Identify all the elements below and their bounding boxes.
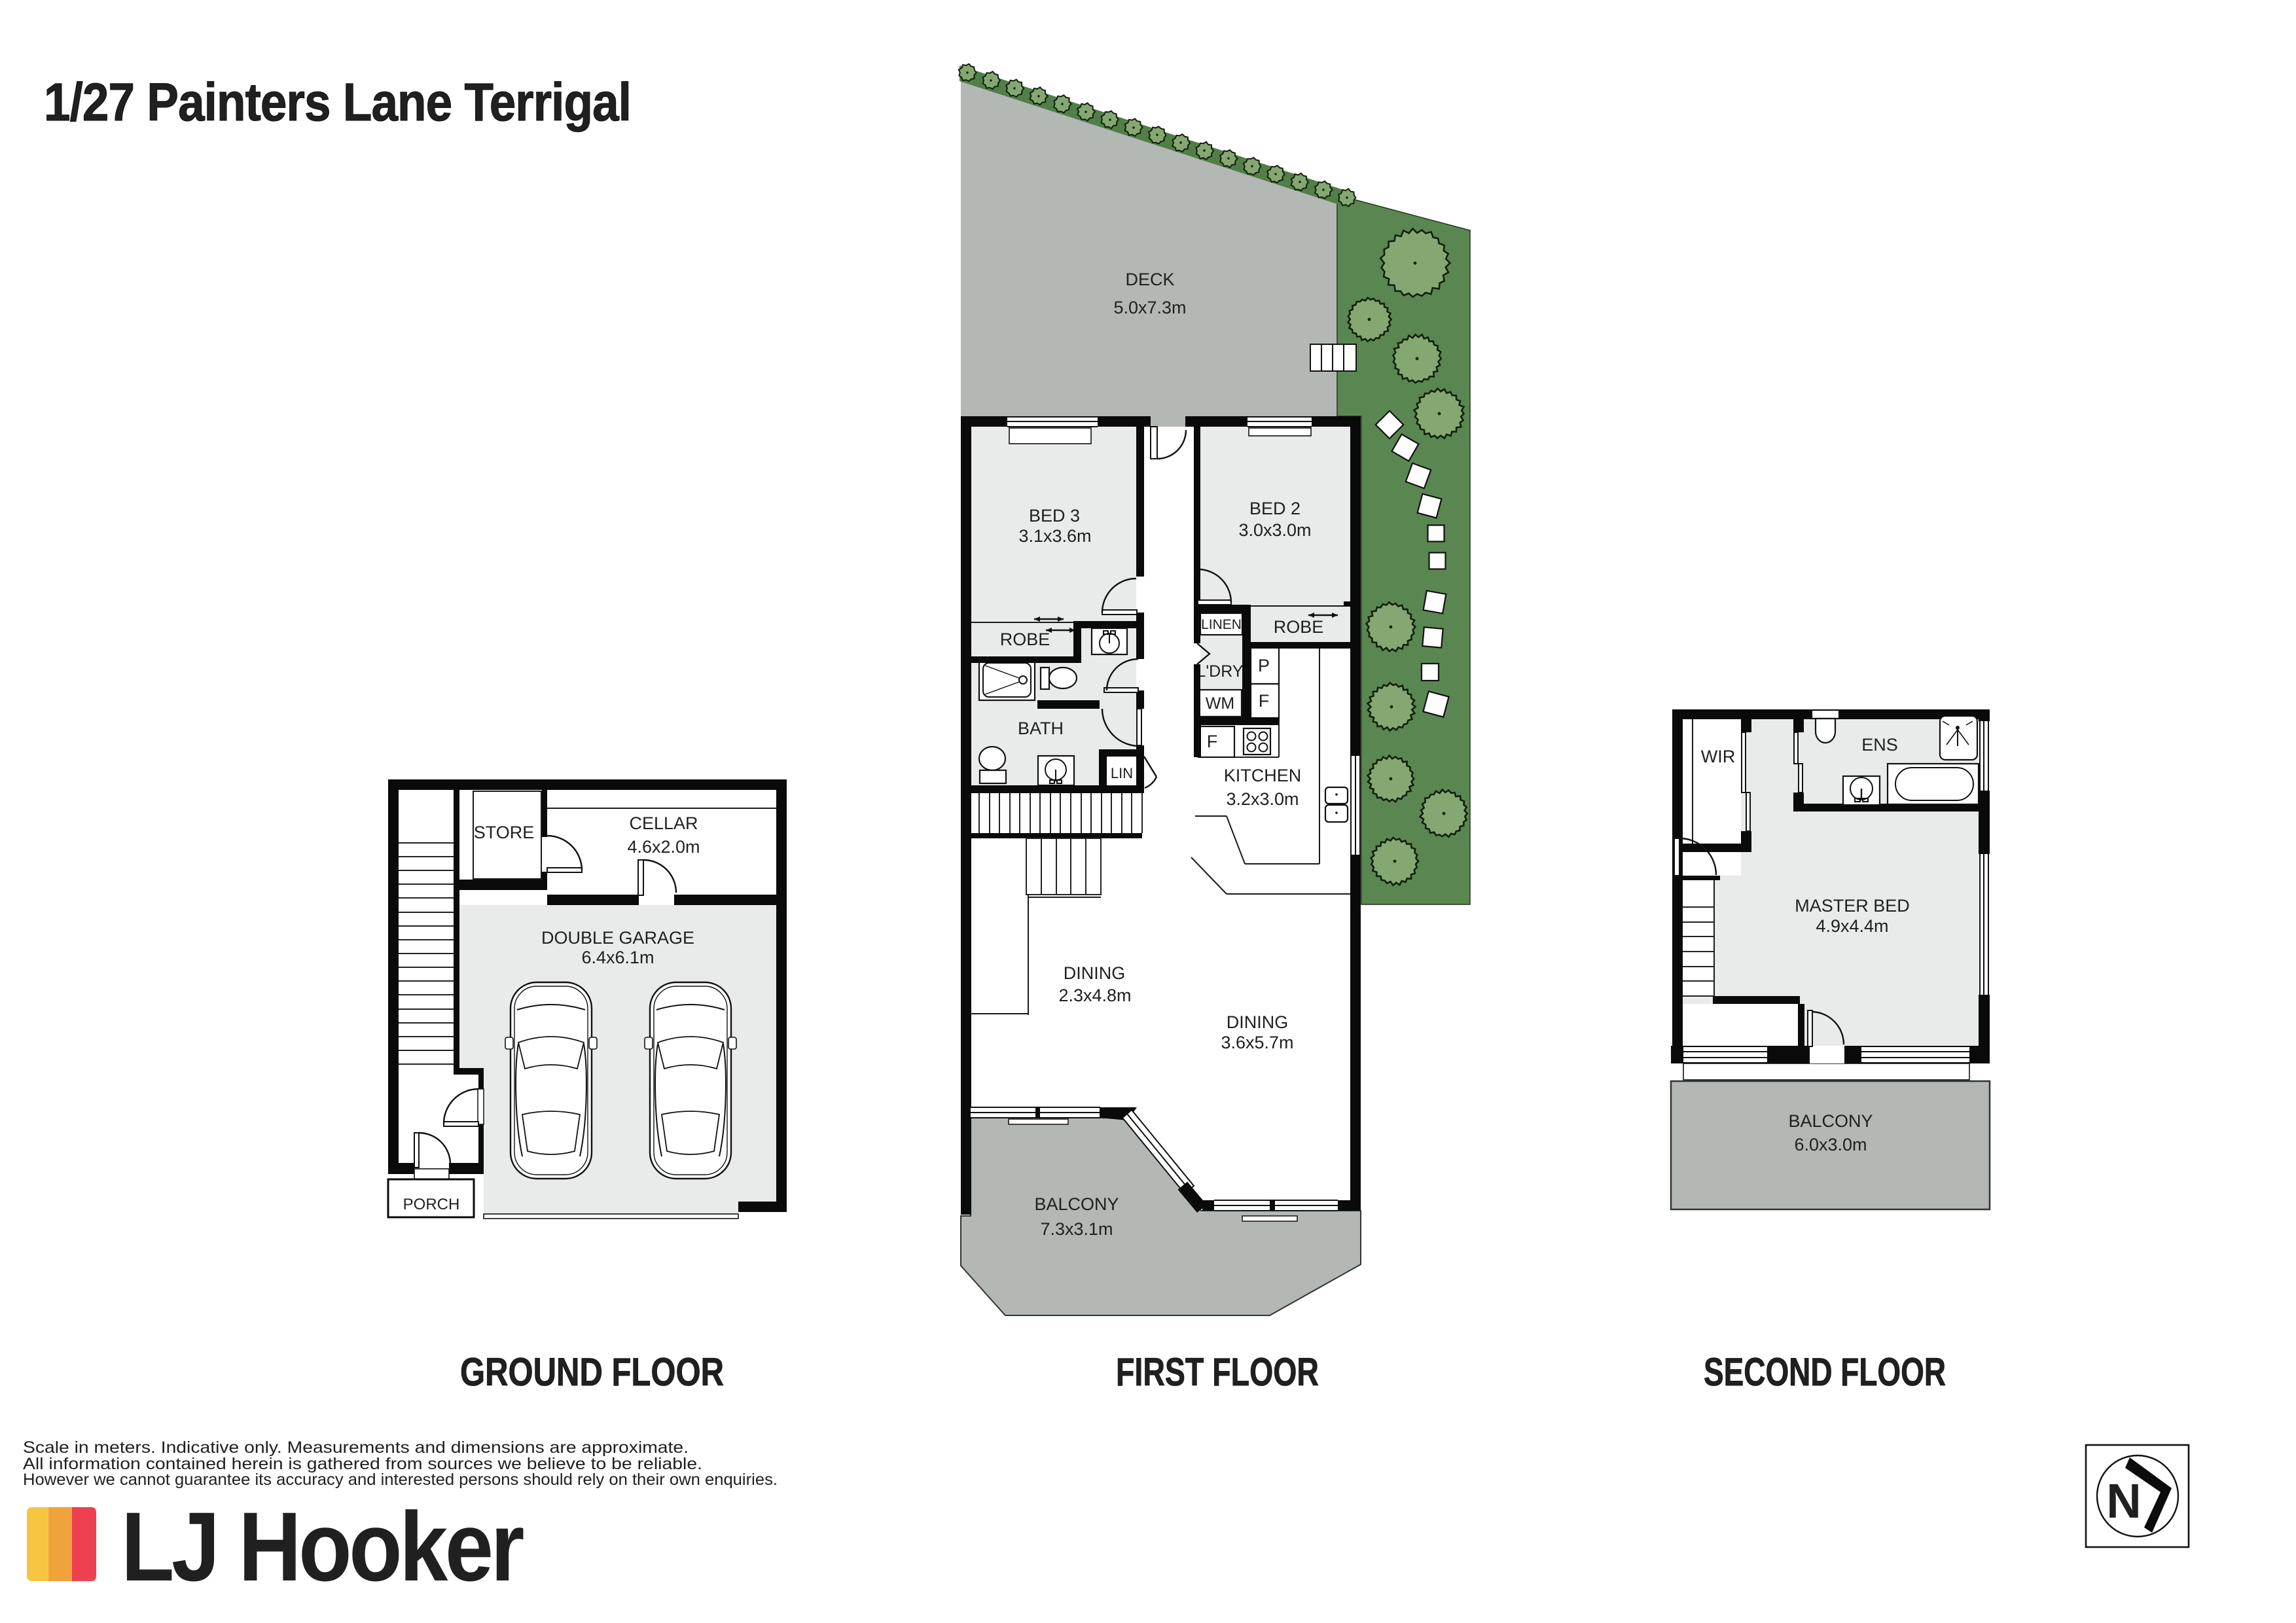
svg-text:LINEN: LINEN <box>1201 617 1242 632</box>
svg-text:P: P <box>1258 656 1270 675</box>
svg-text:3.0x3.0m: 3.0x3.0m <box>1238 520 1311 540</box>
svg-text:6.4x6.1m: 6.4x6.1m <box>581 948 654 967</box>
svg-text:5.0x7.3m: 5.0x7.3m <box>1113 298 1186 317</box>
svg-text:MASTER BED: MASTER BED <box>1795 896 1910 916</box>
svg-text:F: F <box>1207 732 1218 751</box>
svg-text:3.2x3.0m: 3.2x3.0m <box>1226 789 1299 809</box>
svg-text:LJ Hooker: LJ Hooker <box>121 1491 524 1601</box>
svg-text:F: F <box>1259 691 1270 711</box>
svg-text:BALCONY: BALCONY <box>1788 1111 1873 1131</box>
svg-text:BED 3: BED 3 <box>1029 506 1080 526</box>
svg-text:KITCHEN: KITCHEN <box>1224 766 1302 785</box>
svg-text:4.9x4.4m: 4.9x4.4m <box>1816 916 1888 936</box>
svg-text:SECOND FLOOR: SECOND FLOOR <box>1704 1350 1946 1394</box>
svg-text:ROBE: ROBE <box>1000 630 1050 649</box>
svg-text:GROUND FLOOR: GROUND FLOOR <box>460 1350 724 1394</box>
svg-text:2.3x4.8m: 2.3x4.8m <box>1058 986 1131 1005</box>
svg-text:N: N <box>2106 1474 2141 1528</box>
svg-text:LIN: LIN <box>1111 765 1133 781</box>
svg-text:ENS: ENS <box>1861 735 1898 755</box>
svg-text:DOUBLE GARAGE: DOUBLE GARAGE <box>541 928 694 948</box>
svg-text:BALCONY: BALCONY <box>1034 1194 1119 1214</box>
svg-text:WIR: WIR <box>1701 747 1735 766</box>
svg-text:1/27 Painters Lane Terrigal: 1/27 Painters Lane Terrigal <box>44 73 631 132</box>
svg-text:DECK: DECK <box>1125 270 1174 289</box>
svg-text:3.6x5.7m: 3.6x5.7m <box>1221 1033 1293 1052</box>
svg-text:BATH: BATH <box>1018 719 1064 738</box>
svg-text:6.0x3.0m: 6.0x3.0m <box>1794 1135 1867 1154</box>
svg-text:3.1x3.6m: 3.1x3.6m <box>1018 526 1091 546</box>
svg-text:7.3x3.1m: 7.3x3.1m <box>1040 1219 1113 1239</box>
svg-text:STORE: STORE <box>474 823 535 842</box>
svg-text:However we cannot guarantee it: However we cannot guarantee its accuracy… <box>23 1471 778 1489</box>
svg-text:DINING: DINING <box>1064 963 1126 983</box>
svg-text:BED 2: BED 2 <box>1249 499 1300 518</box>
svg-text:CELLAR: CELLAR <box>629 813 698 833</box>
svg-text:DINING: DINING <box>1227 1012 1289 1032</box>
svg-text:FIRST FLOOR: FIRST FLOOR <box>1116 1350 1319 1394</box>
svg-text:WM: WM <box>1206 694 1234 713</box>
svg-text:ROBE: ROBE <box>1274 617 1324 637</box>
svg-text:Scale in meters. Indicative o: Scale in meters. Indicative only. Measur… <box>23 1438 689 1457</box>
svg-text:PORCH: PORCH <box>403 1196 460 1213</box>
svg-text:4.6x2.0m: 4.6x2.0m <box>627 837 700 857</box>
svg-text:L'DRY: L'DRY <box>1196 662 1243 681</box>
